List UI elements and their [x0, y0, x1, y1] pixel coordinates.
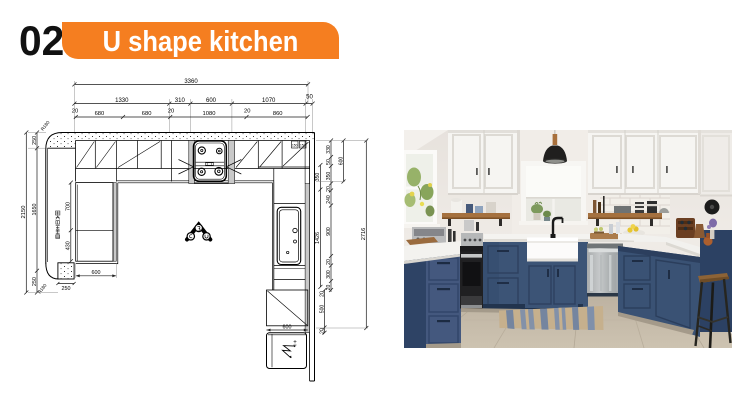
svg-text:600: 600 — [92, 270, 101, 276]
svg-text:860: 860 — [273, 111, 283, 117]
svg-text:150: 150 — [300, 144, 306, 148]
svg-text:20: 20 — [326, 285, 332, 291]
svg-text:R180: R180 — [40, 120, 51, 132]
svg-text:350: 350 — [315, 173, 321, 182]
svg-text:3360: 3360 — [184, 79, 198, 85]
svg-text:250: 250 — [62, 286, 71, 292]
svg-text:600: 600 — [283, 324, 292, 330]
svg-text:330: 330 — [326, 145, 332, 154]
svg-text:900: 900 — [326, 227, 332, 236]
svg-text:2150: 2150 — [21, 206, 27, 219]
svg-text:250: 250 — [32, 277, 38, 286]
svg-text:700: 700 — [66, 202, 72, 211]
svg-text:500: 500 — [320, 305, 326, 314]
svg-text:680: 680 — [142, 111, 152, 117]
svg-text:50: 50 — [306, 95, 313, 101]
svg-text:20: 20 — [320, 328, 326, 334]
svg-text:600: 600 — [206, 98, 217, 104]
svg-text:150: 150 — [292, 144, 298, 148]
svg-text:1426: 1426 — [315, 232, 321, 244]
svg-text:1070: 1070 — [262, 98, 276, 104]
svg-text:300: 300 — [326, 270, 332, 279]
svg-text:50: 50 — [326, 159, 332, 165]
svg-text:20: 20 — [326, 259, 332, 265]
svg-text:1650: 1650 — [32, 204, 38, 216]
svg-text:430: 430 — [66, 241, 72, 250]
svg-text:310: 310 — [175, 98, 186, 104]
svg-text:680: 680 — [95, 111, 105, 117]
svg-text:R180: R180 — [37, 283, 48, 295]
svg-text:240: 240 — [326, 195, 332, 204]
svg-text:350: 350 — [326, 172, 332, 181]
svg-text:20: 20 — [72, 109, 78, 115]
svg-text:1080: 1080 — [203, 111, 216, 117]
svg-text:2716: 2716 — [361, 228, 367, 240]
svg-text:600: 600 — [338, 157, 344, 166]
svg-text:20: 20 — [320, 291, 326, 297]
svg-text:20: 20 — [168, 109, 174, 115]
svg-text:1330: 1330 — [115, 98, 129, 104]
svg-text:20: 20 — [244, 109, 250, 115]
svg-text:250: 250 — [32, 136, 38, 145]
svg-text:20: 20 — [326, 186, 332, 192]
